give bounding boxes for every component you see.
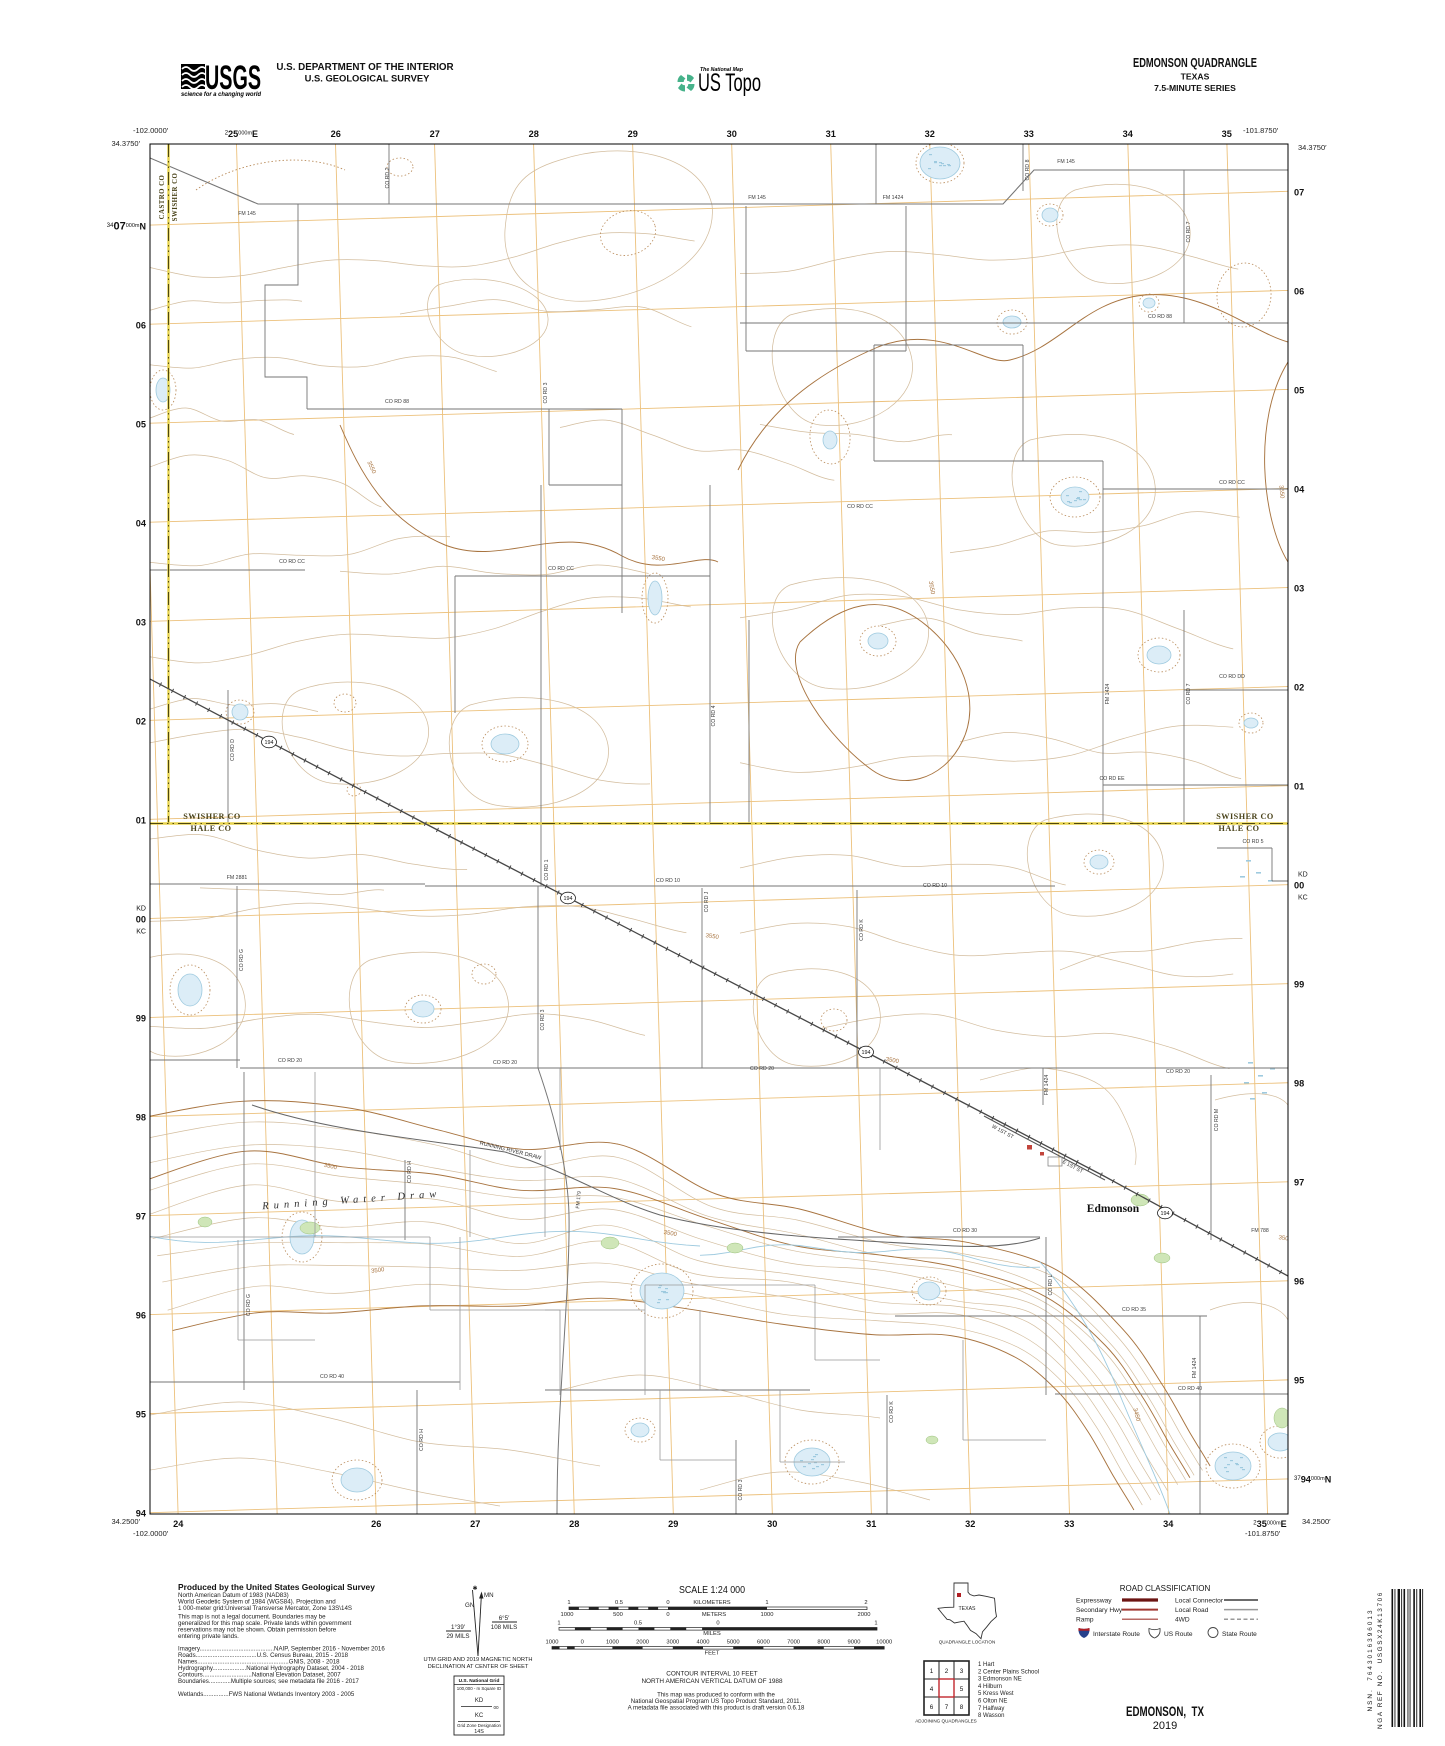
svg-text:CASTRO CO: CASTRO CO [159,175,166,220]
svg-text:MN: MN [484,1592,494,1599]
svg-text:3 Edmonson NE: 3 Edmonson NE [978,1677,1022,1683]
svg-text:05: 05 [136,419,146,429]
svg-text:-102.0000′: -102.0000′ [133,1529,169,1538]
svg-text:7 Halfway: 7 Halfway [978,1706,1004,1712]
svg-text:194: 194 [1161,1211,1170,1217]
svg-text:UTM GRID AND 2019 MAGNETIC NOR: UTM GRID AND 2019 MAGNETIC NORTH [424,1657,533,1663]
svg-text:CO RD K: CO RD K [889,1401,895,1423]
svg-text:QUADRANGLE LOCATION: QUADRANGLE LOCATION [939,1640,996,1645]
svg-text:26: 26 [371,1519,381,1529]
svg-text:2: 2 [945,1668,949,1675]
svg-text:FM 1424: FM 1424 [1105,684,1111,705]
svg-text:8: 8 [960,1704,964,1711]
svg-text:96: 96 [1294,1277,1304,1287]
svg-text:1: 1 [874,1621,877,1627]
svg-text:Grid Zone Designation: Grid Zone Designation [457,1723,501,1728]
svg-text:1000: 1000 [606,1640,619,1646]
svg-text:HALE CO: HALE CO [190,824,231,833]
svg-text:CO RD 35: CO RD 35 [1122,1307,1146,1313]
svg-text:32: 32 [925,129,935,139]
svg-text:CO RD 30: CO RD 30 [953,1228,977,1234]
svg-text:29: 29 [628,129,638,139]
svg-text:28: 28 [529,129,539,139]
svg-text:CO RD CC: CO RD CC [548,566,574,572]
svg-text:Edmonson: Edmonson [1087,1203,1140,1215]
svg-text:194: 194 [862,1050,871,1056]
svg-text:U.S. DEPARTMENT OF THE INTERIO: U.S. DEPARTMENT OF THE INTERIOR [276,62,453,73]
svg-text:34.3750′: 34.3750′ [1298,143,1327,152]
svg-text:KC: KC [475,1713,484,1719]
svg-text:5000: 5000 [727,1640,740,1646]
svg-text:FM 1424: FM 1424 [883,195,904,201]
svg-text:SCALE 1:24 000: SCALE 1:24 000 [679,1584,745,1596]
svg-text:METERS: METERS [702,1612,726,1618]
svg-text:HALE CO: HALE CO [1218,824,1259,833]
svg-text:0: 0 [666,1612,669,1618]
svg-text:CO RD 3: CO RD 3 [738,1479,744,1500]
svg-text:entering private lands.: entering private lands. [178,1633,239,1640]
svg-text:9000: 9000 [848,1640,861,1646]
svg-text:04: 04 [136,518,147,528]
svg-text:0: 0 [666,1600,669,1606]
svg-text:01: 01 [1294,782,1304,792]
svg-text:CO RD DD: CO RD DD [1219,674,1245,680]
svg-text:3000: 3000 [666,1640,679,1646]
svg-text:04: 04 [1294,485,1305,495]
svg-text:0: 0 [581,1640,584,1646]
svg-text:CO RD 7: CO RD 7 [1186,221,1192,242]
svg-text:5 Kress West: 5 Kress West [978,1691,1014,1697]
svg-text:CO RD 10: CO RD 10 [656,878,680,884]
svg-text:CO RD L: CO RD L [1048,1274,1054,1295]
svg-text:2000: 2000 [858,1612,871,1618]
svg-text:27: 27 [470,1519,480,1529]
svg-text:U.S. GEOLOGICAL SURVEY: U.S. GEOLOGICAL SURVEY [305,73,430,84]
svg-text:FM 2881: FM 2881 [227,875,248,881]
svg-text:8 Wasson: 8 Wasson [978,1713,1004,1719]
svg-text:CO RD 20: CO RD 20 [750,1066,774,1072]
svg-text:ROAD CLASSIFICATION: ROAD CLASSIFICATION [1120,1584,1211,1593]
svg-text:24: 24 [173,1519,184,1529]
svg-text:CO RD 1: CO RD 1 [544,859,550,880]
svg-text:194: 194 [564,896,573,902]
svg-text:4000: 4000 [697,1640,710,1646]
svg-text:Boundaries.............Multipl: Boundaries.............Multiple sources;… [178,1678,359,1685]
svg-text:1000: 1000 [561,1612,574,1618]
svg-text:FM 145: FM 145 [238,211,256,217]
svg-text:2 Center Plains School: 2 Center Plains School [978,1669,1039,1675]
svg-text:30: 30 [767,1519,777,1529]
svg-text:00: 00 [493,1705,499,1710]
svg-text:2: 2 [864,1600,867,1606]
svg-text:KC: KC [136,928,146,935]
svg-text:29: 29 [668,1519,678,1529]
svg-text:3550: 3550 [1277,485,1284,499]
svg-text:CO RD 4: CO RD 4 [711,705,717,726]
svg-text:Interstate Route: Interstate Route [1093,1631,1140,1638]
svg-text:CO RD 2: CO RD 2 [385,167,391,188]
svg-text:FM 145: FM 145 [1057,159,1075,165]
svg-text:31: 31 [866,1519,876,1529]
svg-text:30: 30 [727,129,737,139]
svg-text:CO RD 5: CO RD 5 [1242,839,1263,845]
svg-text:CO RD 3: CO RD 3 [540,1009,546,1030]
svg-text:CO RD M: CO RD M [1214,1109,1220,1131]
svg-text:CO RD H: CO RD H [419,1429,425,1451]
svg-text:CO RD 8: CO RD 8 [1025,159,1031,180]
svg-text:State Route: State Route [1222,1631,1257,1638]
svg-text:CO RD D: CO RD D [230,739,236,761]
svg-text:4WD: 4WD [1175,1617,1190,1624]
svg-text:14S: 14S [474,1729,484,1735]
svg-text:35: 35 [1222,129,1232,139]
svg-text:6 Olton NE: 6 Olton NE [978,1699,1007,1705]
svg-text:Expressway: Expressway [1076,1598,1112,1605]
svg-text:94: 94 [136,1508,147,1518]
svg-text:33: 33 [1064,1519,1074,1529]
svg-text:FM 1424: FM 1424 [1192,1358,1198,1379]
svg-text:Produced by the United States: Produced by the United States Geological… [178,1582,375,1592]
svg-text:7.5-MINUTE SERIES: 7.5-MINUTE SERIES [1154,83,1236,93]
svg-text:98: 98 [1294,1079,1304,1089]
svg-text:6°5′: 6°5′ [499,1615,510,1622]
svg-text:A metadata file associated wit: A metadata file associated with this pro… [628,1705,805,1712]
svg-text:MILES: MILES [703,1631,721,1637]
svg-text:NORTH AMERICAN VERTICAL DATUM: NORTH AMERICAN VERTICAL DATUM OF 1988 [641,1678,783,1685]
svg-text:1000: 1000 [546,1640,559,1646]
svg-text:34: 34 [1123,129,1134,139]
svg-text:FEET: FEET [705,1651,720,1657]
svg-text:100,000 - m Square ID: 100,000 - m Square ID [457,1686,501,1691]
svg-text:-101.8750′: -101.8750′ [1243,126,1279,135]
svg-text:00: 00 [1294,881,1304,891]
svg-text:2000: 2000 [636,1640,649,1646]
svg-text:Secondary Hwy: Secondary Hwy [1076,1607,1123,1614]
svg-text:28: 28 [569,1519,579,1529]
svg-text:98: 98 [136,1112,146,1122]
svg-text:0.5: 0.5 [615,1600,623,1606]
svg-text:194: 194 [265,740,274,746]
svg-text:Local Connector: Local Connector [1175,1598,1224,1605]
svg-text:02: 02 [1294,683,1304,693]
svg-text:CO RD 10: CO RD 10 [923,883,947,889]
svg-text:CO RD CC: CO RD CC [847,504,873,510]
svg-text:KD: KD [1298,872,1308,879]
svg-text:31: 31 [826,129,836,139]
svg-text:NGA REF NO. USGSX24K13706: NGA REF NO. USGSX24K13706 [1377,1591,1384,1729]
svg-text:TEXAS: TEXAS [958,1606,976,1612]
svg-text:4 Hilburn: 4 Hilburn [978,1684,1002,1690]
svg-text:05: 05 [1294,386,1304,396]
svg-text:99: 99 [136,1013,146,1023]
svg-text:KILOMETERS: KILOMETERS [693,1600,730,1606]
svg-text:10000: 10000 [876,1640,892,1646]
svg-text:03: 03 [136,617,146,627]
svg-text:1°39′: 1°39′ [451,1624,466,1631]
svg-text:96: 96 [136,1310,146,1320]
svg-text:06: 06 [1294,287,1304,297]
svg-text:33: 33 [1024,129,1034,139]
svg-text:1: 1 [930,1668,934,1675]
svg-text:CO RD G: CO RD G [246,1294,252,1316]
svg-text:CO RD 20: CO RD 20 [278,1058,302,1064]
svg-text:FM 145: FM 145 [748,195,766,201]
svg-text:97: 97 [136,1211,146,1221]
svg-text:CO RD 20: CO RD 20 [1166,1069,1190,1075]
svg-text:CO RD 7: CO RD 7 [1186,683,1192,704]
svg-text:97: 97 [1294,1178,1304,1188]
svg-text:CO RD H: CO RD H [407,1161,413,1183]
svg-text:GN: GN [465,1602,474,1609]
svg-text:34: 34 [1163,1519,1174,1529]
svg-text:DECLINATION AT CENTER OF SHEET: DECLINATION AT CENTER OF SHEET [428,1664,529,1670]
svg-text:03: 03 [1294,584,1304,594]
svg-text:CO RD G: CO RD G [239,949,245,971]
svg-text:KD: KD [475,1698,484,1704]
svg-text:02: 02 [136,716,146,726]
svg-text:01: 01 [136,815,146,825]
svg-text:34.3750′: 34.3750′ [111,139,140,148]
svg-text:6: 6 [930,1704,934,1711]
svg-text:CO RD 20: CO RD 20 [493,1060,517,1066]
svg-text:95: 95 [1294,1376,1304,1386]
svg-text:Ramp: Ramp [1076,1617,1094,1624]
svg-text:NSN. 7643016396013: NSN. 7643016396013 [1367,1608,1374,1711]
svg-text:KD: KD [136,905,146,912]
svg-text:1 Hart: 1 Hart [978,1662,995,1668]
svg-text:CO RD CC: CO RD CC [279,559,305,565]
svg-text:✱: ✱ [472,1585,477,1592]
svg-text:07: 07 [1294,188,1304,198]
svg-text:32: 32 [965,1519,975,1529]
svg-text:FM 1424: FM 1424 [1044,1075,1050,1096]
svg-text:-101.8750′: -101.8750′ [1245,1529,1281,1538]
svg-text:6000: 6000 [757,1640,770,1646]
svg-text:CO RD J: CO RD J [704,891,710,912]
svg-text:EDMONSON, TX: EDMONSON, TX [1126,1704,1204,1719]
svg-text:CO RD 40: CO RD 40 [320,1374,344,1380]
svg-text:CO RD 3: CO RD 3 [543,382,549,403]
svg-text:99: 99 [1294,980,1304,990]
svg-text:1000: 1000 [761,1612,774,1618]
svg-text:KC: KC [1298,895,1308,902]
svg-text:7: 7 [945,1704,949,1711]
svg-text:500: 500 [613,1612,623,1618]
svg-text:FM 788: FM 788 [1251,1228,1269,1234]
svg-text:science for a changing world: science for a changing world [181,91,262,98]
svg-text:34.2500′: 34.2500′ [1302,1517,1331,1526]
svg-text:06: 06 [136,320,146,330]
svg-text:5: 5 [960,1686,964,1693]
svg-text:US Route: US Route [1164,1631,1193,1638]
svg-text:7000: 7000 [787,1640,800,1646]
svg-text:U.S. National Grid: U.S. National Grid [459,1678,500,1684]
svg-text:29 MILS: 29 MILS [446,1633,469,1640]
svg-text:3: 3 [960,1668,964,1675]
svg-text:2019: 2019 [1153,1720,1177,1732]
svg-text:CO RD 88: CO RD 88 [385,399,409,405]
svg-text:1: 1 [765,1600,768,1606]
svg-text:26: 26 [331,129,341,139]
svg-text:SWISHER CO: SWISHER CO [172,173,179,222]
svg-text:CO RD K: CO RD K [859,919,865,941]
svg-text:EDMONSON QUADRANGLE: EDMONSON QUADRANGLE [1133,56,1257,70]
svg-text:CO RD 40: CO RD 40 [1178,1386,1202,1392]
svg-text:CONTOUR INTERVAL 10 FEET: CONTOUR INTERVAL 10 FEET [666,1671,757,1678]
svg-text:CO RD CC: CO RD CC [1219,480,1245,486]
svg-text:SWISHER CO: SWISHER CO [1216,812,1274,821]
svg-text:0.5: 0.5 [634,1621,642,1627]
svg-text:Local Road: Local Road [1175,1607,1209,1614]
svg-text:27: 27 [430,129,440,139]
svg-text:1: 1 [567,1600,570,1606]
svg-text:1 000-meter grid:Universal Tra: 1 000-meter grid:Universal Transverse Me… [178,1605,352,1612]
svg-text:CO RD EE: CO RD EE [1099,776,1125,782]
svg-text:SWISHER CO: SWISHER CO [183,812,241,821]
svg-text:0: 0 [716,1621,719,1627]
svg-text:US Topo: US Topo [698,69,761,97]
svg-text:4: 4 [930,1686,934,1693]
svg-text:-102.0000′: -102.0000′ [133,126,169,135]
svg-text:CO RD 88: CO RD 88 [1148,314,1172,320]
svg-text:108 MILS: 108 MILS [491,1624,517,1631]
svg-text:00: 00 [136,914,146,924]
svg-text:TEXAS: TEXAS [1181,72,1210,82]
svg-text:8000: 8000 [817,1640,830,1646]
svg-text:1: 1 [557,1621,560,1627]
svg-text:ADJOINING QUADRANGLES: ADJOINING QUADRANGLES [915,1719,977,1724]
svg-text:Wetlands...............FWS Na: Wetlands...............FWS National Wetl… [178,1691,355,1698]
svg-text:95: 95 [136,1409,146,1419]
